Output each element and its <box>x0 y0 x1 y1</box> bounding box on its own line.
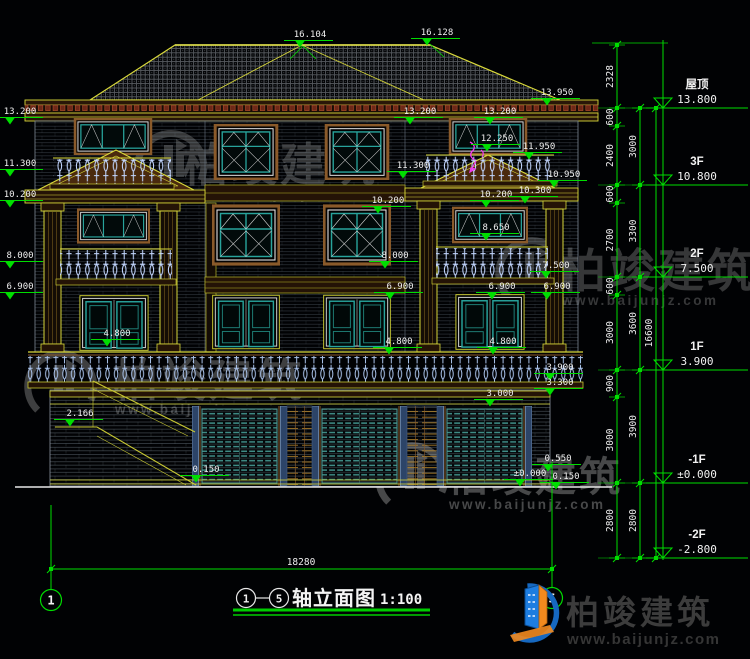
svg-text:3.900: 3.900 <box>680 355 713 368</box>
svg-text:8.000: 8.000 <box>6 251 33 261</box>
svg-text:10.300: 10.300 <box>519 186 552 196</box>
svg-text:11.300: 11.300 <box>4 159 37 169</box>
dimension-text: 900 <box>605 375 616 392</box>
balcony-3f-left <box>50 158 174 189</box>
svg-text:13.950: 13.950 <box>541 88 574 98</box>
door-1f-center-right <box>324 295 391 348</box>
title-axis-end-num: 5 <box>276 593 283 606</box>
door-1f-bay-left <box>80 296 148 351</box>
svg-text:±0.000: ±0.000 <box>514 469 547 479</box>
dimension-text: 3300 <box>628 219 639 242</box>
dimension-text: 16600 <box>644 318 655 347</box>
svg-text:3.900: 3.900 <box>546 363 573 373</box>
window-2f-center-left <box>213 206 279 264</box>
svg-text:0.150: 0.150 <box>192 465 219 475</box>
balcony-3f-right <box>423 155 557 186</box>
door-1f-center-left <box>213 295 280 348</box>
terrace-balustrade <box>28 352 583 388</box>
watermark-brand: 柏竣建筑 <box>560 245 750 297</box>
svg-text:10.200: 10.200 <box>372 196 405 206</box>
svg-text:7.500: 7.500 <box>542 261 569 271</box>
window-2f-center-right <box>324 206 390 264</box>
svg-text:7.500: 7.500 <box>680 262 713 275</box>
svg-text:10.800: 10.800 <box>677 170 717 183</box>
window-2f-bay-left <box>78 210 149 243</box>
dimension-text: 600 <box>605 185 616 202</box>
svg-text:4.800: 4.800 <box>385 337 412 347</box>
garage-door-2 <box>312 406 407 486</box>
svg-text:10.200: 10.200 <box>4 190 37 200</box>
dimension-text: 600 <box>605 108 616 125</box>
balcony-2f-right <box>432 247 554 284</box>
drawing-scale: 1:100 <box>380 592 422 608</box>
svg-text:3F: 3F <box>690 156 703 168</box>
svg-text:屋顶: 屋顶 <box>686 77 709 91</box>
overall-dimension-text: 18280 <box>287 557 316 568</box>
svg-text:11.300: 11.300 <box>397 161 430 171</box>
svg-text:8.000: 8.000 <box>381 251 408 261</box>
dimension-text: 2800 <box>605 509 616 532</box>
svg-text:-2F: -2F <box>688 529 705 541</box>
drawing-title: 轴立面图 <box>292 586 376 610</box>
svg-text:3.300: 3.300 <box>546 378 573 388</box>
garage-pier <box>287 406 312 486</box>
dimension-text: 3000 <box>628 135 639 158</box>
floor-band-2f <box>205 277 405 293</box>
svg-text:0.150: 0.150 <box>552 472 579 482</box>
basement <box>50 381 550 486</box>
svg-text:3.000: 3.000 <box>486 389 513 399</box>
svg-text:1F: 1F <box>690 341 703 353</box>
svg-text:12.250: 12.250 <box>481 134 514 144</box>
svg-text:11.950: 11.950 <box>523 142 556 152</box>
dimension-text: 3000 <box>605 428 616 451</box>
garage-pier <box>407 406 437 486</box>
svg-text:16.104: 16.104 <box>294 30 327 40</box>
title-axis-start-num: 1 <box>243 593 250 606</box>
window-3f-center-left <box>215 125 277 179</box>
svg-text:1: 1 <box>47 594 54 608</box>
cad-elevation-drawing: 柏竣建筑www.baijunjz.com柏竣建筑www.baijunjz.com… <box>0 0 750 659</box>
dimension-text: 2700 <box>605 228 616 251</box>
svg-text:4.800: 4.800 <box>103 329 130 339</box>
watermark-url: www.baijunjz.com <box>448 497 606 512</box>
svg-text:8.650: 8.650 <box>482 223 509 233</box>
svg-text:13.800: 13.800 <box>677 93 717 106</box>
bay-cornice-left <box>25 190 205 203</box>
svg-text:6.900: 6.900 <box>543 282 570 292</box>
brand-logo-url: www.baijunjz.com <box>566 631 720 648</box>
svg-text:-2.800: -2.800 <box>677 543 717 556</box>
svg-text:2.166: 2.166 <box>66 409 93 419</box>
svg-text:10.950: 10.950 <box>548 170 581 180</box>
svg-text:6.900: 6.900 <box>488 282 515 292</box>
svg-text:6.900: 6.900 <box>6 282 33 292</box>
dimension-text: 2400 <box>605 144 616 167</box>
svg-text:6.900: 6.900 <box>386 282 413 292</box>
svg-text:4.800: 4.800 <box>489 337 516 347</box>
dimension-text: 2800 <box>628 509 639 532</box>
brand-logo-text: 柏竣建筑 <box>566 594 714 631</box>
window-3f-center-right <box>326 125 388 179</box>
svg-text:13.200: 13.200 <box>4 107 37 117</box>
dimension-text: 3900 <box>628 415 639 438</box>
balcony-2f-left <box>56 249 176 285</box>
dimension-text: 2328 <box>605 65 616 88</box>
svg-text:±0.000: ±0.000 <box>677 468 717 481</box>
svg-text:10.200: 10.200 <box>480 190 513 200</box>
dimension-text: 600 <box>605 277 616 294</box>
svg-text:13.200: 13.200 <box>404 107 437 117</box>
building-elevation <box>15 45 612 487</box>
svg-text:16.128: 16.128 <box>421 28 454 38</box>
svg-text:0.550: 0.550 <box>544 454 571 464</box>
dimension-text: 3600 <box>628 312 639 335</box>
svg-text:2F: 2F <box>690 248 703 260</box>
window-3f-bay-left <box>75 119 151 154</box>
svg-text:13.200: 13.200 <box>484 107 517 117</box>
dimension-text: 3000 <box>605 321 616 344</box>
svg-text:-1F: -1F <box>688 454 705 466</box>
